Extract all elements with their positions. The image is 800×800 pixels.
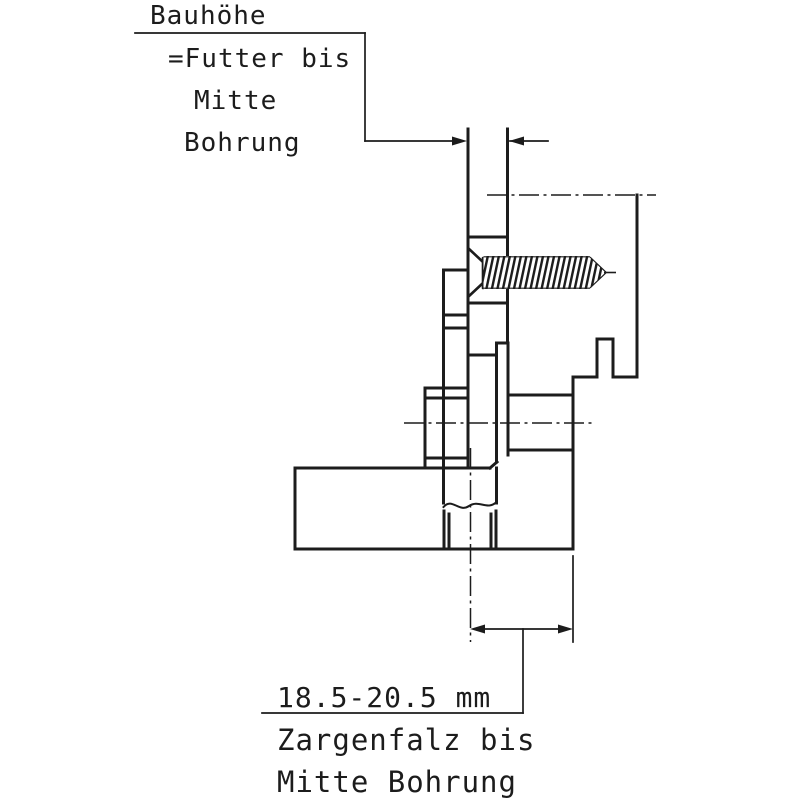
label-futter-bis: =Futter bis [168, 46, 351, 72]
label-mitte: Mitte [194, 88, 277, 114]
arrowhead-right [558, 625, 573, 634]
door-frame-profile [573, 195, 637, 549]
arrowhead-left [509, 137, 524, 146]
hinge-leaf [468, 129, 508, 468]
technical-drawing-page: Bauhöhe =Futter bis Mitte Bohrung 18.5-2… [0, 0, 800, 800]
label-zargenfalz-bis: Zargenfalz bis [277, 726, 535, 755]
frame-tab [597, 339, 613, 377]
label-bauhoehe: Bauhöhe [150, 3, 267, 29]
door-panel [295, 468, 573, 549]
screw-tip [590, 257, 606, 288]
arrowhead-left [470, 625, 485, 634]
countersunk-screw [468, 248, 616, 297]
label-mitte-bohrung: Mitte Bohrung [277, 768, 517, 797]
flange-plate [468, 343, 508, 468]
label-dimension-value: 18.5-20.5 mm [277, 684, 491, 712]
arrowhead-right [452, 137, 467, 146]
screw-head-cone-bottom [468, 283, 483, 297]
sleeve-block [425, 388, 468, 468]
hinge-section-drawing [0, 0, 800, 800]
label-bohrung: Bohrung [184, 130, 301, 156]
screw-thread [484, 256, 591, 289]
screw-head-cone-top [468, 248, 483, 262]
